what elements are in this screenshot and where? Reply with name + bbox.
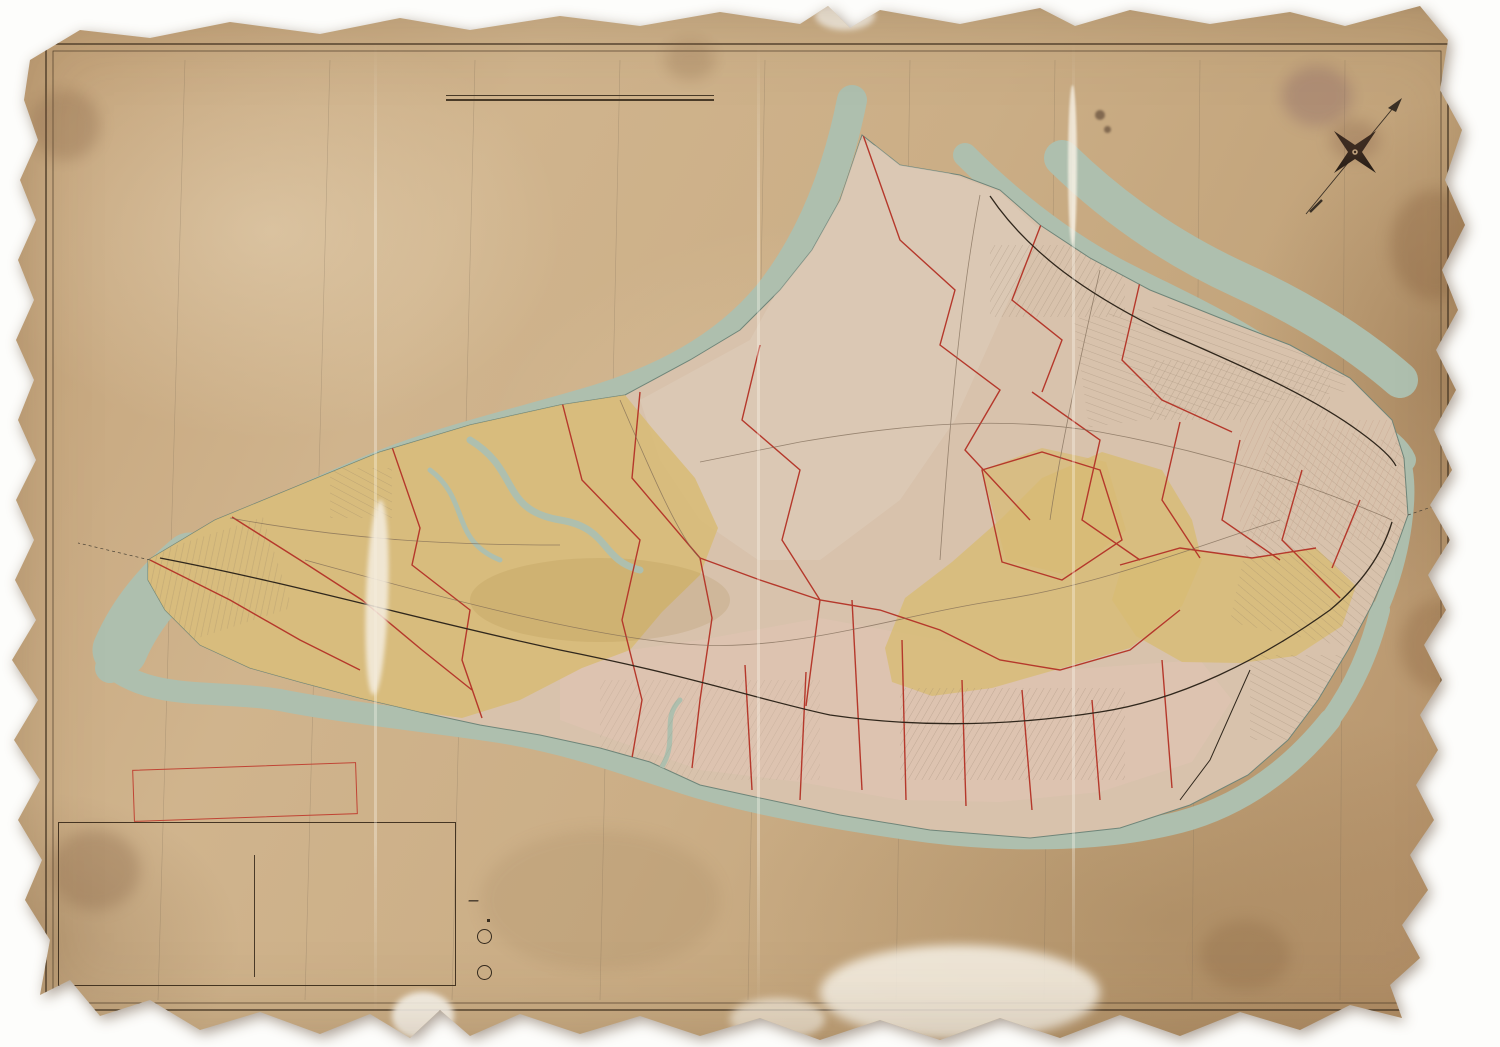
map-scan: [0, 0, 1500, 1047]
north-arrow-icon: [1306, 98, 1402, 214]
plate-dot: [487, 919, 490, 922]
scale-block: [446, 80, 714, 101]
key-divider: [254, 855, 255, 977]
atlas-note-line: [139, 768, 349, 775]
scale-ruler: [446, 83, 714, 101]
title-block: [118, 70, 368, 74]
ward-note-block: [468, 894, 678, 907]
atlas-note-line: [139, 768, 349, 775]
key-box: [58, 822, 456, 986]
paper: [0, 0, 1500, 1047]
plate-number-circle: [477, 929, 492, 944]
atlas-note-box: [132, 762, 358, 822]
plate-letter-circle: [477, 965, 492, 980]
ward-note-title: [468, 894, 678, 907]
paper-shadow: [0, 0, 1500, 1047]
atlas-note-line: [139, 768, 349, 775]
